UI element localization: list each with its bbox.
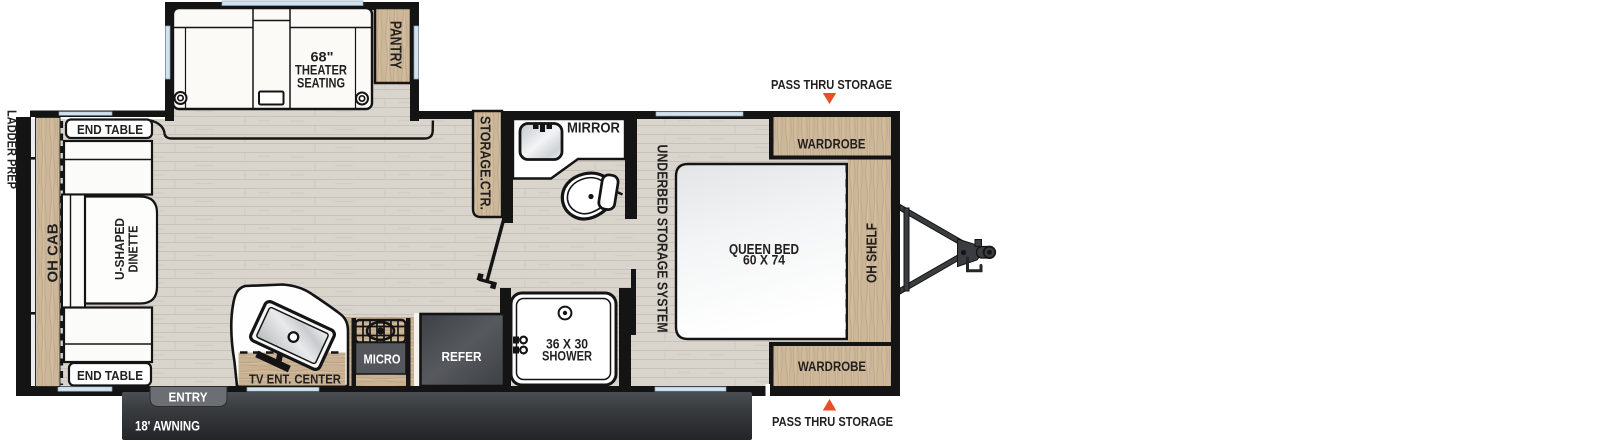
svg-text:PANTRY: PANTRY [387,21,404,70]
svg-text:U-SHAPED: U-SHAPED [113,218,127,280]
svg-text:60 X 74: 60 X 74 [743,252,785,268]
svg-text:ENTRY: ENTRY [169,391,209,405]
svg-text:SHOWER: SHOWER [542,349,592,364]
svg-text:LADDER PREP: LADDER PREP [5,110,20,189]
svg-text:WARDROBE: WARDROBE [798,136,866,152]
svg-text:WARDROBE: WARDROBE [798,358,866,374]
svg-text:PASS THRU STORAGE: PASS THRU STORAGE [771,77,892,92]
svg-text:OH CAB: OH CAB [46,224,62,283]
svg-text:REFER: REFER [442,349,483,364]
svg-text:MIRROR: MIRROR [567,120,620,137]
svg-text:18' AWNING: 18' AWNING [135,418,200,434]
svg-text:UNDERBED STORAGE SYSTEM: UNDERBED STORAGE SYSTEM [654,145,670,333]
svg-text:STORAGE.CTR.: STORAGE.CTR. [477,116,493,210]
svg-text:OH SHELF: OH SHELF [864,223,881,283]
svg-text:END TABLE: END TABLE [77,122,143,137]
svg-text:END TABLE: END TABLE [77,368,143,383]
svg-text:MICRO: MICRO [364,352,401,367]
svg-text:TV ENT. CENTER: TV ENT. CENTER [249,373,341,387]
svg-text:DINETTE: DINETTE [127,226,141,273]
svg-text:PASS THRU STORAGE: PASS THRU STORAGE [772,414,893,429]
svg-text:SEATING: SEATING [297,75,345,91]
